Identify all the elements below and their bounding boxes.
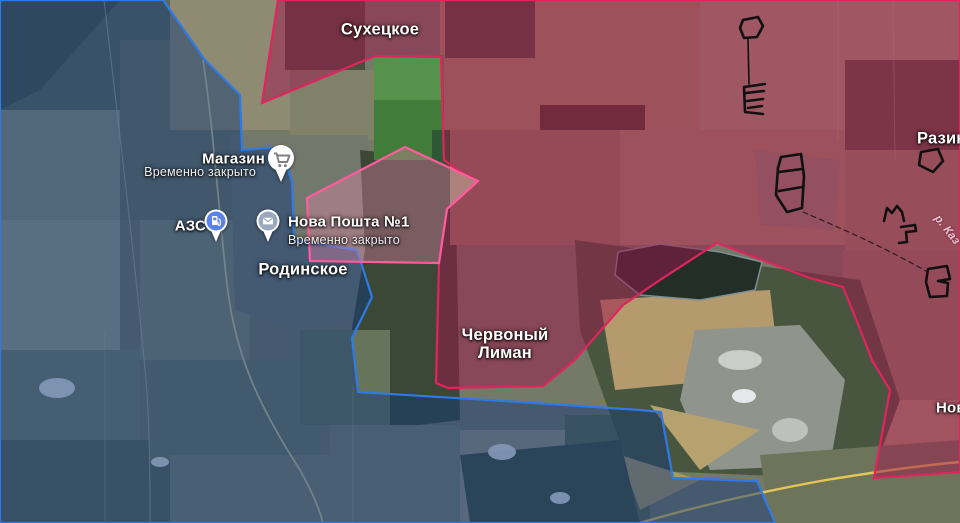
green-field-notch xyxy=(374,55,450,165)
gas-pin[interactable] xyxy=(202,208,230,244)
map-canvas[interactable]: Сухецкое Разино Червоный Лиман Родинское… xyxy=(0,0,960,523)
town-label-rodinskoe: Родинское xyxy=(258,261,347,280)
post-pin[interactable] xyxy=(254,208,282,244)
poi-status-shop: Временно закрыто xyxy=(144,165,256,179)
town-label-novo-clipped: Ново xyxy=(936,400,960,417)
trench-line xyxy=(748,39,749,84)
satellite-basemap xyxy=(0,0,960,523)
town-label-chervony-liman: Червоный Лиман xyxy=(457,326,553,362)
poi-label-post[interactable]: Нова Пошта №1 xyxy=(288,214,410,231)
mail-icon xyxy=(263,218,273,225)
poi-status-post: Временно закрыто xyxy=(288,233,400,247)
shop-pin[interactable] xyxy=(265,144,297,184)
town-label-razino: Разино xyxy=(917,130,960,149)
town-label-sukhetskoe: Сухецкое xyxy=(341,21,419,40)
